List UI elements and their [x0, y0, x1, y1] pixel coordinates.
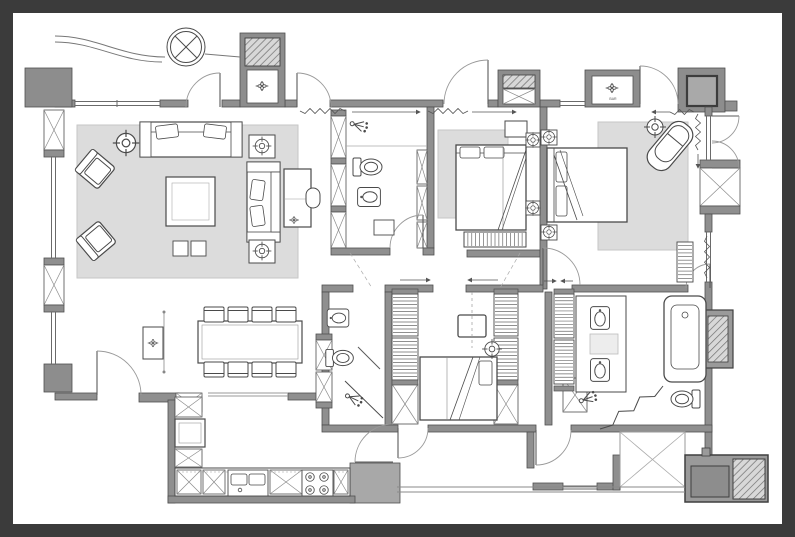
utility-wall	[613, 455, 620, 490]
ottoman	[173, 241, 188, 256]
ac-condenser	[691, 466, 729, 497]
bath1-strip-cap	[331, 110, 346, 116]
bed1-pillow	[460, 147, 480, 158]
wardrobe-cap	[554, 289, 574, 294]
desk-chair	[306, 188, 320, 208]
dining-chair	[252, 362, 272, 377]
section-dot	[163, 311, 166, 314]
utility-wall	[527, 432, 534, 468]
wall-top	[285, 100, 297, 107]
dining-chair	[252, 307, 272, 322]
sink-basin	[249, 474, 265, 485]
wall-top	[540, 100, 560, 107]
burner	[320, 473, 329, 482]
wardrobe-cap	[494, 289, 518, 294]
ac-platform-hatch	[733, 459, 765, 499]
corridor-wall	[322, 285, 353, 292]
corridor-wall	[572, 285, 688, 292]
sofa-armrest	[231, 122, 242, 157]
dining-chair	[228, 362, 248, 377]
sill-block	[44, 364, 72, 392]
wall-top	[160, 100, 188, 107]
wall-top	[222, 100, 240, 107]
dining-chair	[276, 362, 296, 377]
vanity-sink	[591, 359, 610, 382]
niche-label: BAR	[609, 97, 617, 101]
hall-wall-bottom	[322, 425, 398, 432]
radiator-grille	[677, 242, 693, 282]
loveseat-pillow	[250, 205, 266, 227]
section-dot	[163, 371, 166, 374]
wall-top	[330, 100, 443, 107]
bath-stool	[374, 220, 394, 235]
dining-chair	[204, 362, 224, 377]
loveseat-back	[271, 172, 280, 232]
headboard-shelf	[505, 121, 527, 137]
pier-cap	[44, 305, 64, 312]
ottoman	[191, 241, 206, 256]
bath1-wall-right	[427, 107, 434, 248]
sofa-pillow	[203, 124, 226, 140]
wardrobe-cap	[392, 289, 418, 294]
wall-right	[705, 368, 712, 432]
floor-plan-svg: BAR	[0, 0, 795, 537]
wall-right	[705, 214, 712, 232]
washbasin	[327, 309, 349, 327]
dining-chair	[204, 307, 224, 322]
sofa-armrest	[140, 122, 151, 157]
pier-cap	[316, 402, 332, 408]
kitchen-wall-left	[168, 400, 175, 503]
bath1-strip-cap	[331, 206, 346, 212]
bed1-pillow	[484, 147, 504, 158]
hall-wall-bottom	[571, 425, 712, 432]
bath1-strip-cap	[331, 158, 346, 164]
coffee-table	[166, 177, 215, 226]
bay-cap	[700, 160, 740, 168]
bay-cap	[700, 206, 740, 214]
toilet	[353, 158, 382, 176]
wardrobe-cap	[554, 386, 574, 391]
toilet	[671, 390, 700, 408]
floor-plan: BAR	[0, 0, 795, 537]
bath1-wall-bottom	[331, 248, 390, 255]
masterbath-wall-left	[545, 292, 552, 425]
burner	[320, 486, 329, 495]
kitchen-wall-bottom	[168, 496, 355, 503]
pier-cap	[44, 150, 64, 157]
service-terrace-slab	[350, 463, 400, 503]
powder-wall-right	[385, 292, 392, 425]
bed3-pillow	[479, 361, 492, 385]
exhaust-fan	[167, 28, 205, 66]
loveseat-armrest	[247, 162, 280, 172]
bed1-wall-bottom	[467, 250, 540, 257]
sink-basin	[231, 474, 247, 485]
master-pillow	[556, 186, 567, 216]
wall-top	[488, 100, 498, 107]
dining-chair	[276, 307, 296, 322]
wall-bottom-left	[55, 393, 97, 400]
master-pillow	[556, 152, 567, 182]
dining-chair	[228, 307, 248, 322]
loveseat-pillow	[250, 179, 266, 201]
ac-unit-hatch	[708, 316, 728, 362]
sofa-pillow	[155, 124, 178, 140]
ac-stem	[702, 448, 710, 456]
pier-cap	[44, 258, 64, 265]
burner	[306, 473, 315, 482]
elevator-cab	[687, 76, 717, 106]
duct-hatch	[245, 38, 280, 66]
wall-stub	[725, 101, 737, 111]
washbasin	[358, 188, 381, 207]
pier-cap	[316, 334, 332, 340]
dining-table	[198, 321, 302, 363]
burner	[306, 486, 315, 495]
bath1-wall-bottom	[423, 248, 434, 255]
wall-right	[705, 107, 712, 116]
duct-hatch	[503, 75, 535, 88]
corner-column	[25, 68, 72, 107]
vanity-sink	[591, 307, 610, 330]
hall-wall-bottom	[428, 425, 536, 432]
toilet	[326, 349, 354, 366]
vanity-tray	[590, 334, 618, 354]
wardrobe-cap	[392, 380, 418, 385]
